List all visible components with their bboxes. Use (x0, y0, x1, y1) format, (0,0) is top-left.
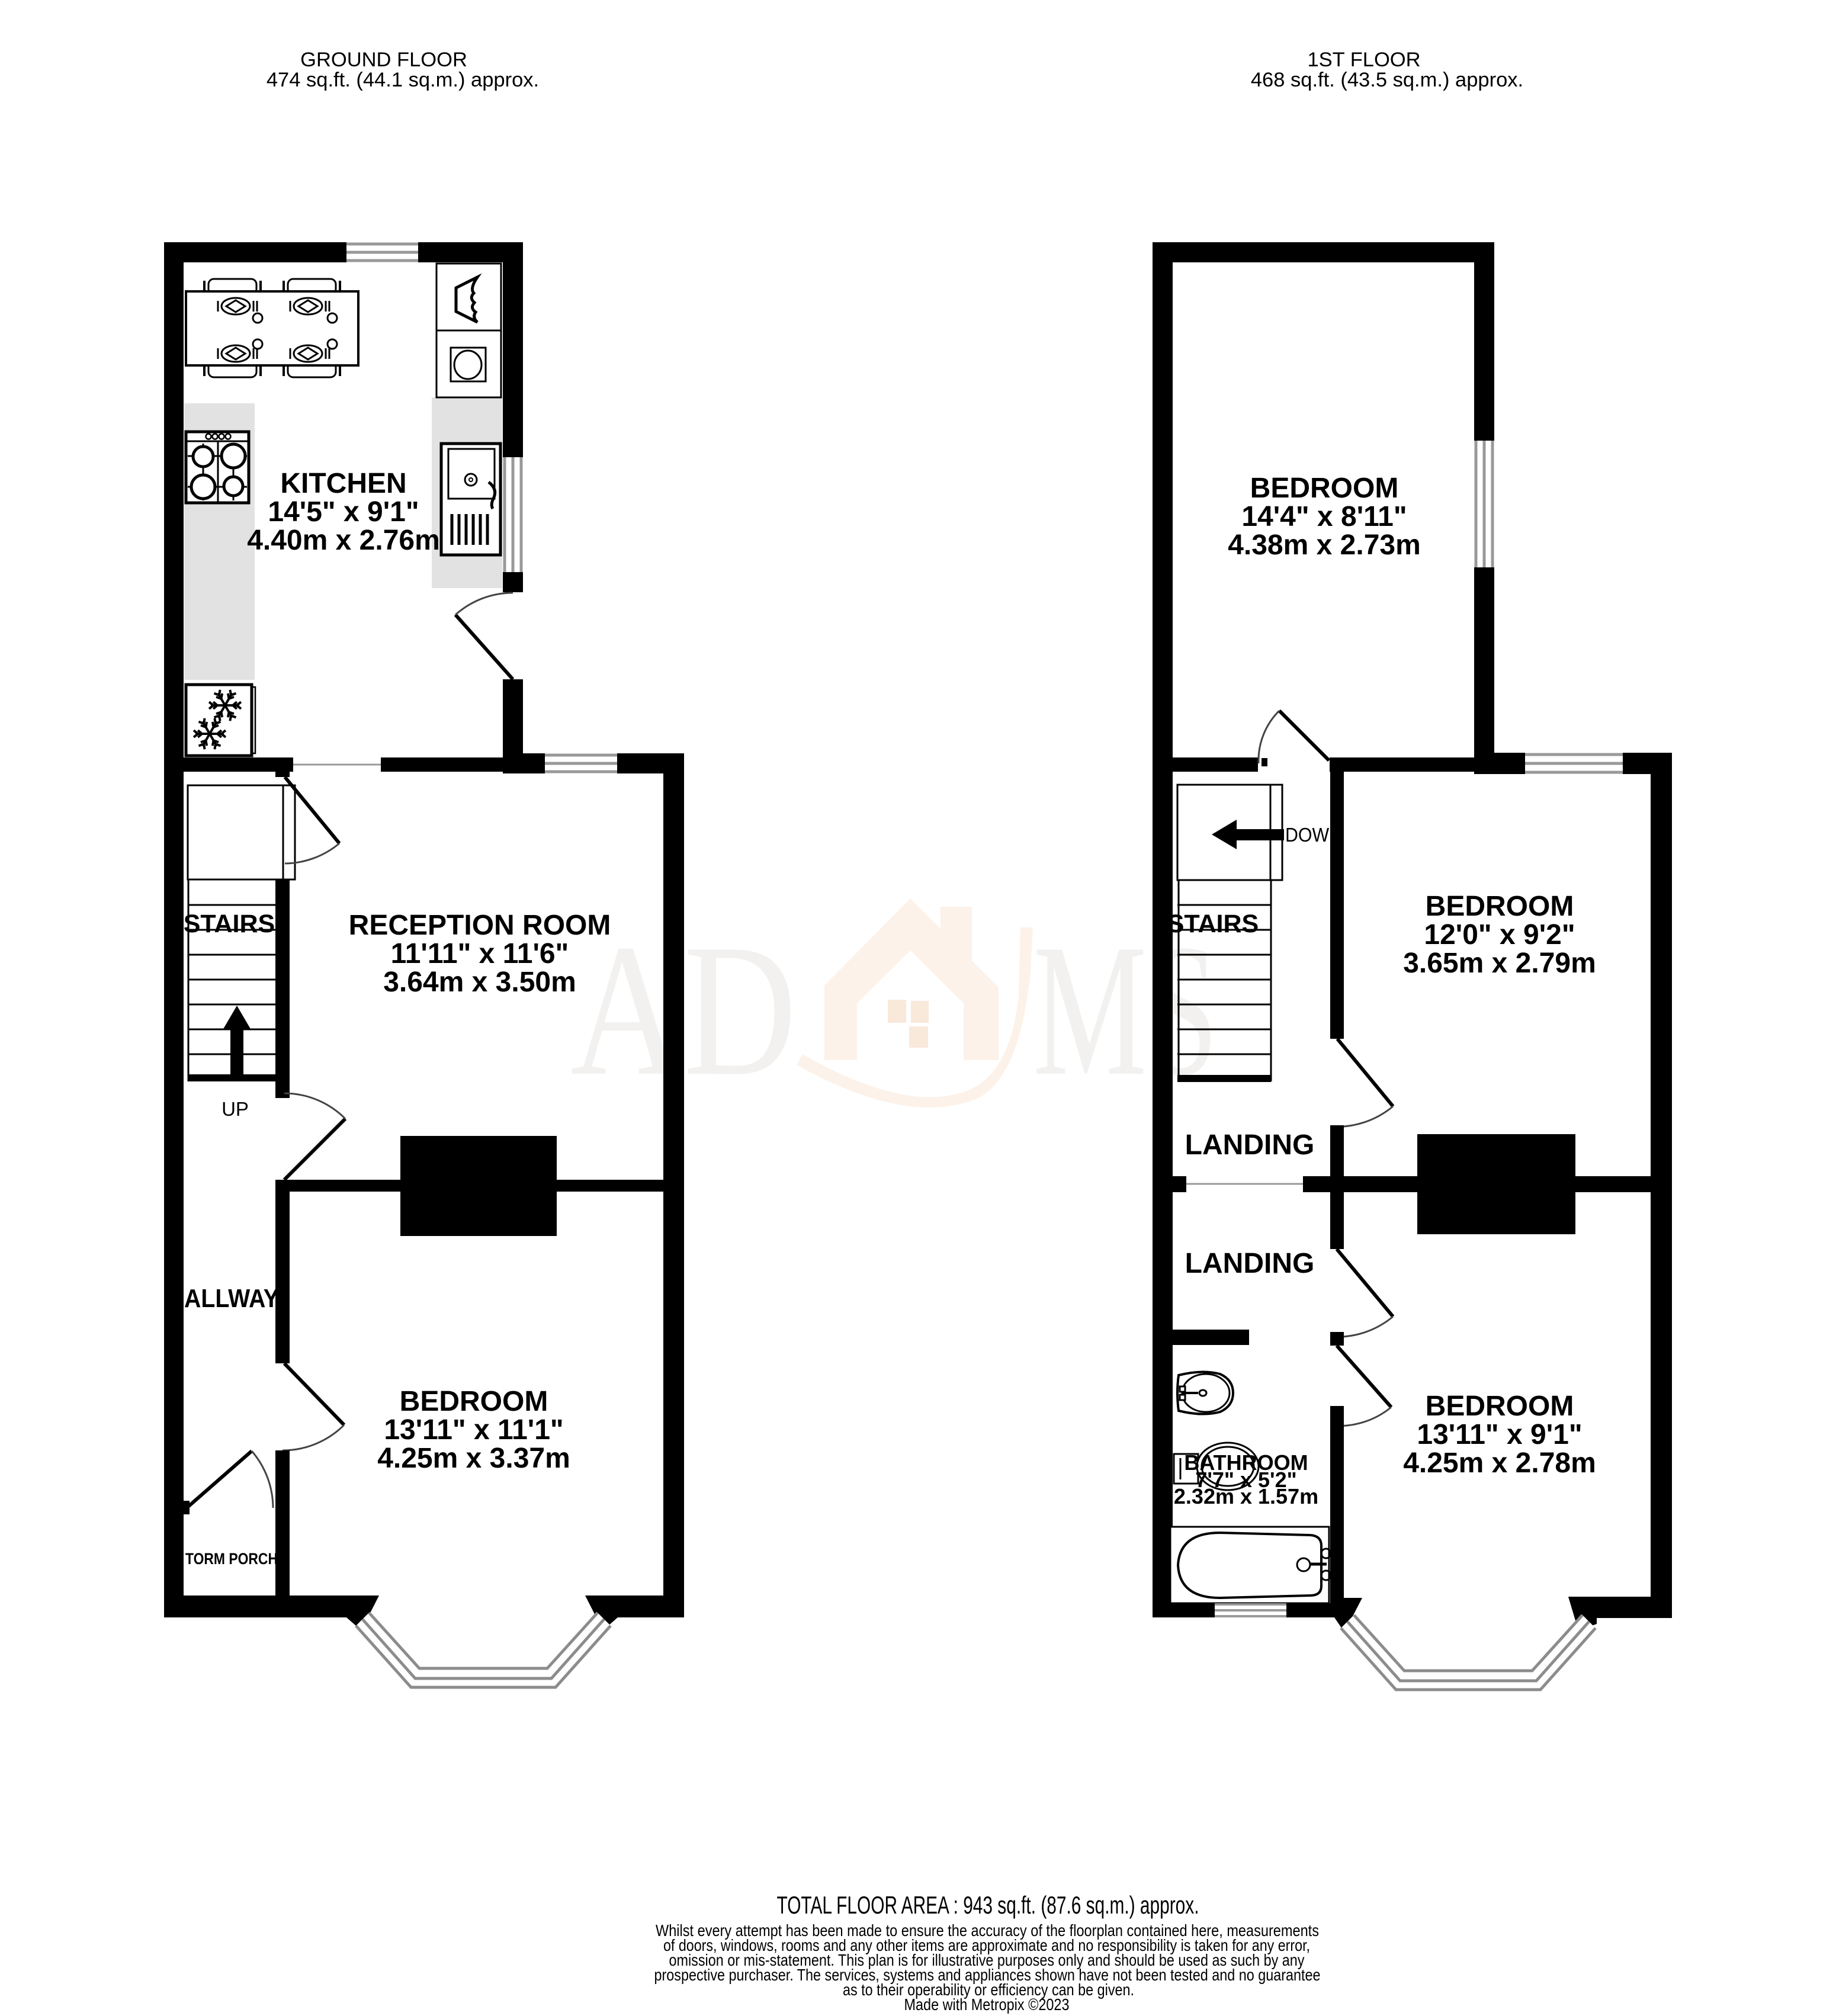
svg-text:3.65m x 2.79m: 3.65m x 2.79m (1403, 948, 1596, 979)
svg-text:14'5" x 9'1": 14'5" x 9'1" (268, 496, 419, 528)
svg-text:3.64m x 3.50m: 3.64m x 3.50m (383, 967, 576, 998)
svg-text:STAIRS: STAIRS (184, 910, 275, 938)
svg-text:BEDROOM: BEDROOM (1426, 891, 1574, 922)
svg-text:STAIRS: STAIRS (1167, 910, 1259, 938)
svg-text:BEDROOM: BEDROOM (400, 1386, 548, 1417)
svg-text:KITCHEN: KITCHEN (280, 468, 406, 499)
svg-text:ALLWAY: ALLWAY (184, 1284, 279, 1313)
svg-text:RECEPTION ROOM: RECEPTION ROOM (349, 910, 611, 941)
svg-text:13'11" x 9'1": 13'11" x 9'1" (1417, 1419, 1582, 1450)
svg-text:474 sq.ft. (44.1 sq.m.) approx: 474 sq.ft. (44.1 sq.m.) approx. (267, 69, 539, 91)
svg-text:11'11" x 11'6": 11'11" x 11'6" (391, 938, 569, 970)
svg-text:4.25m x 2.78m: 4.25m x 2.78m (1403, 1447, 1596, 1479)
svg-text:UP: UP (222, 1098, 249, 1120)
svg-text:4.38m x 2.73m: 4.38m x 2.73m (1228, 529, 1421, 561)
svg-text:4.25m x 3.37m: 4.25m x 3.37m (377, 1443, 570, 1474)
svg-text:468 sq.ft. (43.5 sq.m.) approx: 468 sq.ft. (43.5 sq.m.) approx. (1251, 69, 1523, 91)
svg-text:2.32m x 1.57m: 2.32m x 1.57m (1174, 1484, 1318, 1508)
svg-text:GROUND FLOOR: GROUND FLOOR (300, 49, 467, 71)
svg-text:BEDROOM: BEDROOM (1426, 1391, 1574, 1422)
svg-text:TOTAL FLOOR AREA : 943 sq.ft.: TOTAL FLOOR AREA : 943 sq.ft. (87.6 sq.m… (777, 1891, 1199, 1919)
svg-text:4.40m x 2.76m: 4.40m x 2.76m (247, 525, 440, 556)
svg-text:BEDROOM: BEDROOM (1250, 473, 1399, 504)
svg-text:1ST FLOOR: 1ST FLOOR (1307, 49, 1420, 71)
svg-text:14'4" x 8'11": 14'4" x 8'11" (1241, 501, 1407, 532)
svg-text:TORM PORCH: TORM PORCH (185, 1550, 278, 1568)
svg-text:LANDING: LANDING (1185, 1129, 1315, 1161)
svg-text:LANDING: LANDING (1185, 1248, 1315, 1279)
svg-text:13'11" x 11'1": 13'11" x 11'1" (384, 1414, 563, 1446)
svg-text:12'0" x 9'2": 12'0" x 9'2" (1424, 919, 1575, 951)
svg-text:Made with Metropix ©2023: Made with Metropix ©2023 (904, 1995, 1070, 2014)
